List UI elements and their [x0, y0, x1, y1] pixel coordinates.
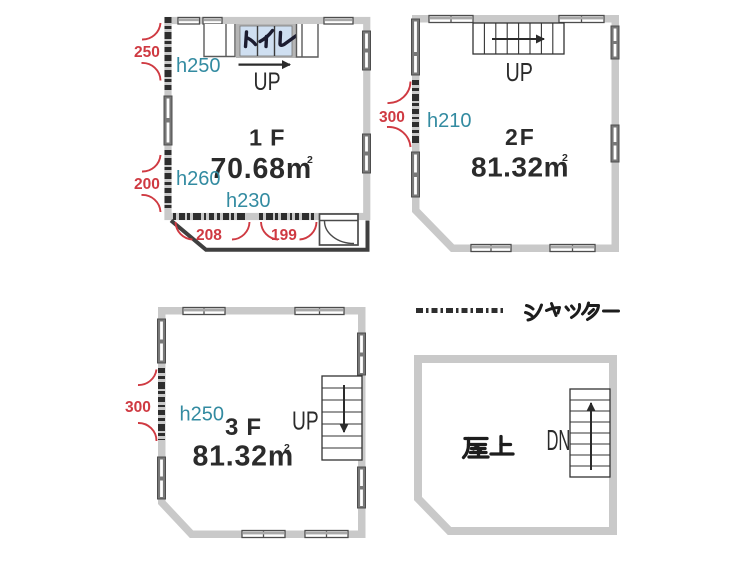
svg-text:208: 208 [196, 227, 222, 244]
svg-text:2: 2 [307, 154, 313, 166]
svg-text:200: 200 [134, 176, 160, 193]
svg-text:h250: h250 [176, 55, 221, 77]
svg-text:300: 300 [125, 399, 151, 416]
svg-text:UP: UP [254, 68, 281, 96]
svg-text:1F: 1F [249, 125, 292, 151]
svg-text:81.32m: 81.32m [471, 152, 569, 183]
svg-text:h250: h250 [180, 404, 225, 426]
svg-text:199: 199 [271, 227, 297, 244]
svg-text:250: 250 [134, 44, 160, 61]
svg-text:81.32m: 81.32m [193, 441, 294, 473]
svg-text:3F: 3F [225, 414, 269, 441]
svg-text:h260: h260 [176, 168, 221, 190]
svg-text:UP: UP [292, 406, 319, 436]
svg-text:DN: DN [547, 425, 571, 457]
svg-text:2F: 2F [505, 124, 536, 150]
svg-text:h230: h230 [226, 190, 271, 212]
svg-text:2: 2 [562, 152, 568, 164]
svg-text:2: 2 [284, 442, 290, 454]
svg-text:h210: h210 [427, 110, 472, 132]
svg-text:70.68m: 70.68m [211, 153, 312, 185]
svg-text:300: 300 [379, 109, 405, 126]
svg-text:UP: UP [506, 57, 533, 86]
